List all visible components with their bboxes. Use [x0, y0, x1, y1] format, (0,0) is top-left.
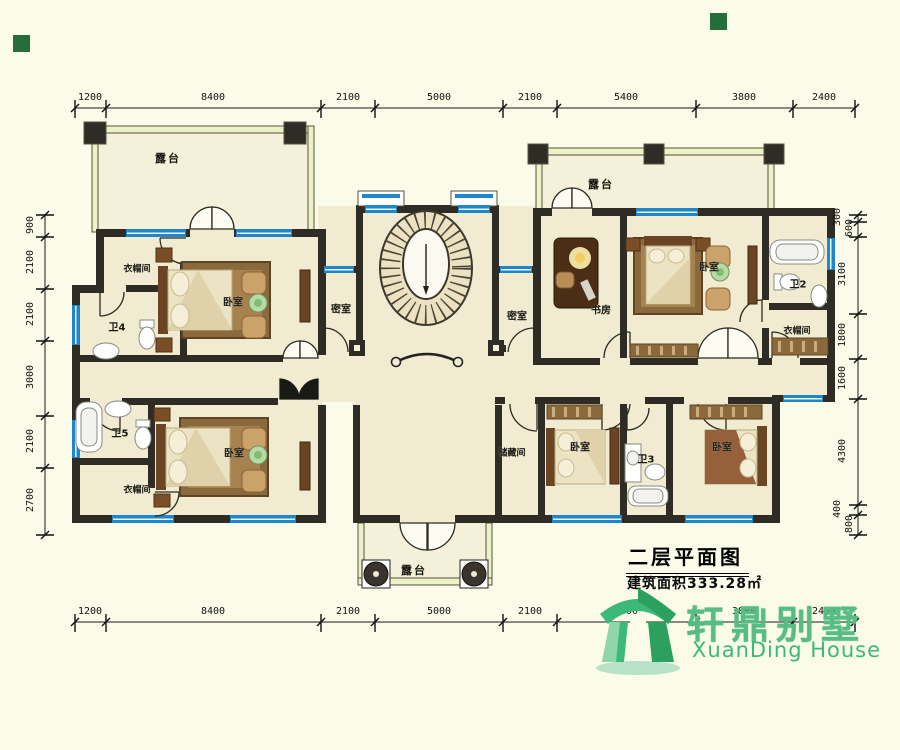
room-label-study: 书房	[591, 302, 611, 317]
column-base	[354, 345, 360, 351]
room-label-bedroom-bl: 卧室	[224, 445, 244, 460]
dim-left-4: 2100	[25, 419, 37, 463]
dim-bottom-2: 2100	[326, 606, 370, 618]
dim-right-7: 800	[844, 502, 856, 546]
dim-bottom-1: 8400	[191, 606, 235, 618]
room-label-bath2: 卫2	[790, 276, 807, 291]
dim-top-2: 2100	[326, 92, 370, 104]
room-label-bedroom-bm: 卧室	[570, 439, 590, 454]
dim-top-0: 1200	[68, 92, 112, 104]
study-furniture	[554, 238, 598, 308]
dim-bottom-0: 1200	[68, 606, 112, 618]
dim-right-4: 1600	[837, 356, 849, 400]
dim-top-3: 5000	[417, 92, 461, 104]
dim-left-5: 2700	[25, 478, 37, 522]
room-label-closet-tl: 衣帽间	[123, 262, 150, 275]
dim-right-2: 3100	[837, 252, 849, 296]
dim-right-5: 4300	[837, 429, 849, 473]
room-label-bedroom-tl: 卧室	[223, 294, 243, 309]
dim-top-7: 2400	[802, 92, 846, 104]
dim-right-3: 1800	[837, 313, 849, 357]
room-label-closet-tr: 衣帽间	[783, 324, 810, 337]
dim-top-6: 3800	[722, 92, 766, 104]
dim-right-0: 300	[832, 195, 844, 239]
dim-bottom-4: 2100	[508, 606, 552, 618]
room-label-secret-right: 密室	[507, 308, 527, 323]
logo-name-en: XuanDing House	[692, 638, 881, 662]
room-label-bedroom-br: 卧室	[712, 439, 732, 454]
pavilion-house-icon	[594, 584, 682, 676]
dim-top-1: 8400	[191, 92, 235, 104]
room-label-closet-bl: 衣帽间	[123, 483, 150, 496]
page-title: 二层平面图	[626, 541, 749, 577]
room-label-bath5: 卫5	[112, 425, 129, 440]
room-label-bath3: 卫3	[638, 451, 655, 466]
dim-right-6: 400	[832, 487, 844, 531]
dim-right-1: 600	[844, 206, 856, 250]
room-label-secret-left: 密室	[331, 301, 351, 316]
room-label-bedroom-tr: 卧室	[699, 259, 719, 274]
closet-tr-wardrobe	[772, 338, 828, 355]
room-label-storage: 储藏间	[498, 446, 525, 459]
bay-windows	[358, 191, 497, 206]
room-label-terrace-bottom: 露台	[401, 562, 427, 578]
dim-left-3: 3000	[25, 355, 37, 399]
dim-top-4: 2100	[508, 92, 552, 104]
oval-staircase-icon	[380, 211, 472, 325]
column-base	[493, 345, 499, 351]
room-label-bath4: 卫4	[109, 319, 126, 334]
dim-bottom-3: 5000	[417, 606, 461, 618]
room-label-terrace-tr: 露台	[588, 176, 614, 192]
dim-top-5: 5400	[604, 92, 648, 104]
dim-left-2: 2100	[25, 292, 37, 336]
room-label-terrace-tl: 露台	[155, 150, 181, 166]
floor-plan-page: { "title": { "text": "二层平面图", "area": "建…	[0, 0, 900, 750]
dim-left-1: 2100	[25, 240, 37, 284]
